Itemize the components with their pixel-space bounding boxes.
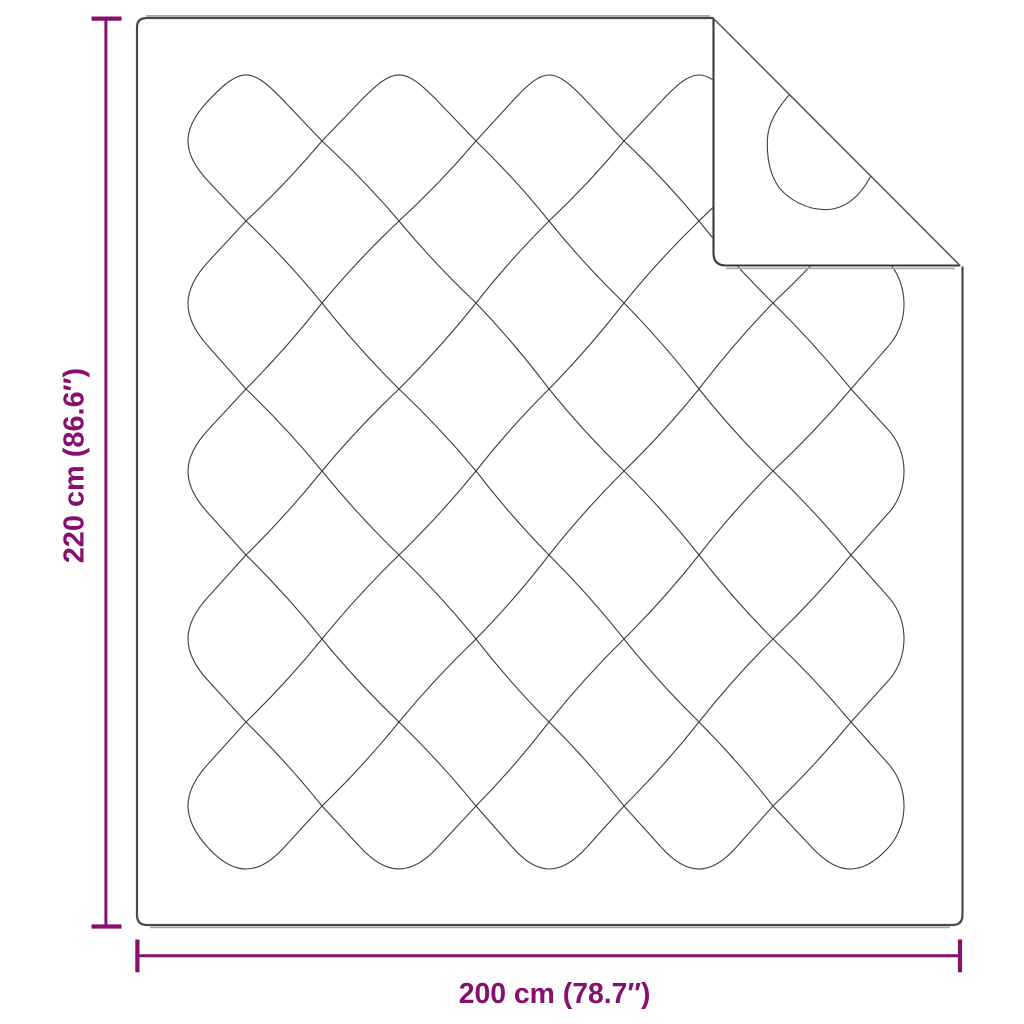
svg-text:200 cm (78.7″): 200 cm (78.7″) bbox=[459, 978, 651, 1010]
svg-text:220 cm (86.6″): 220 cm (86.6″) bbox=[59, 368, 91, 563]
